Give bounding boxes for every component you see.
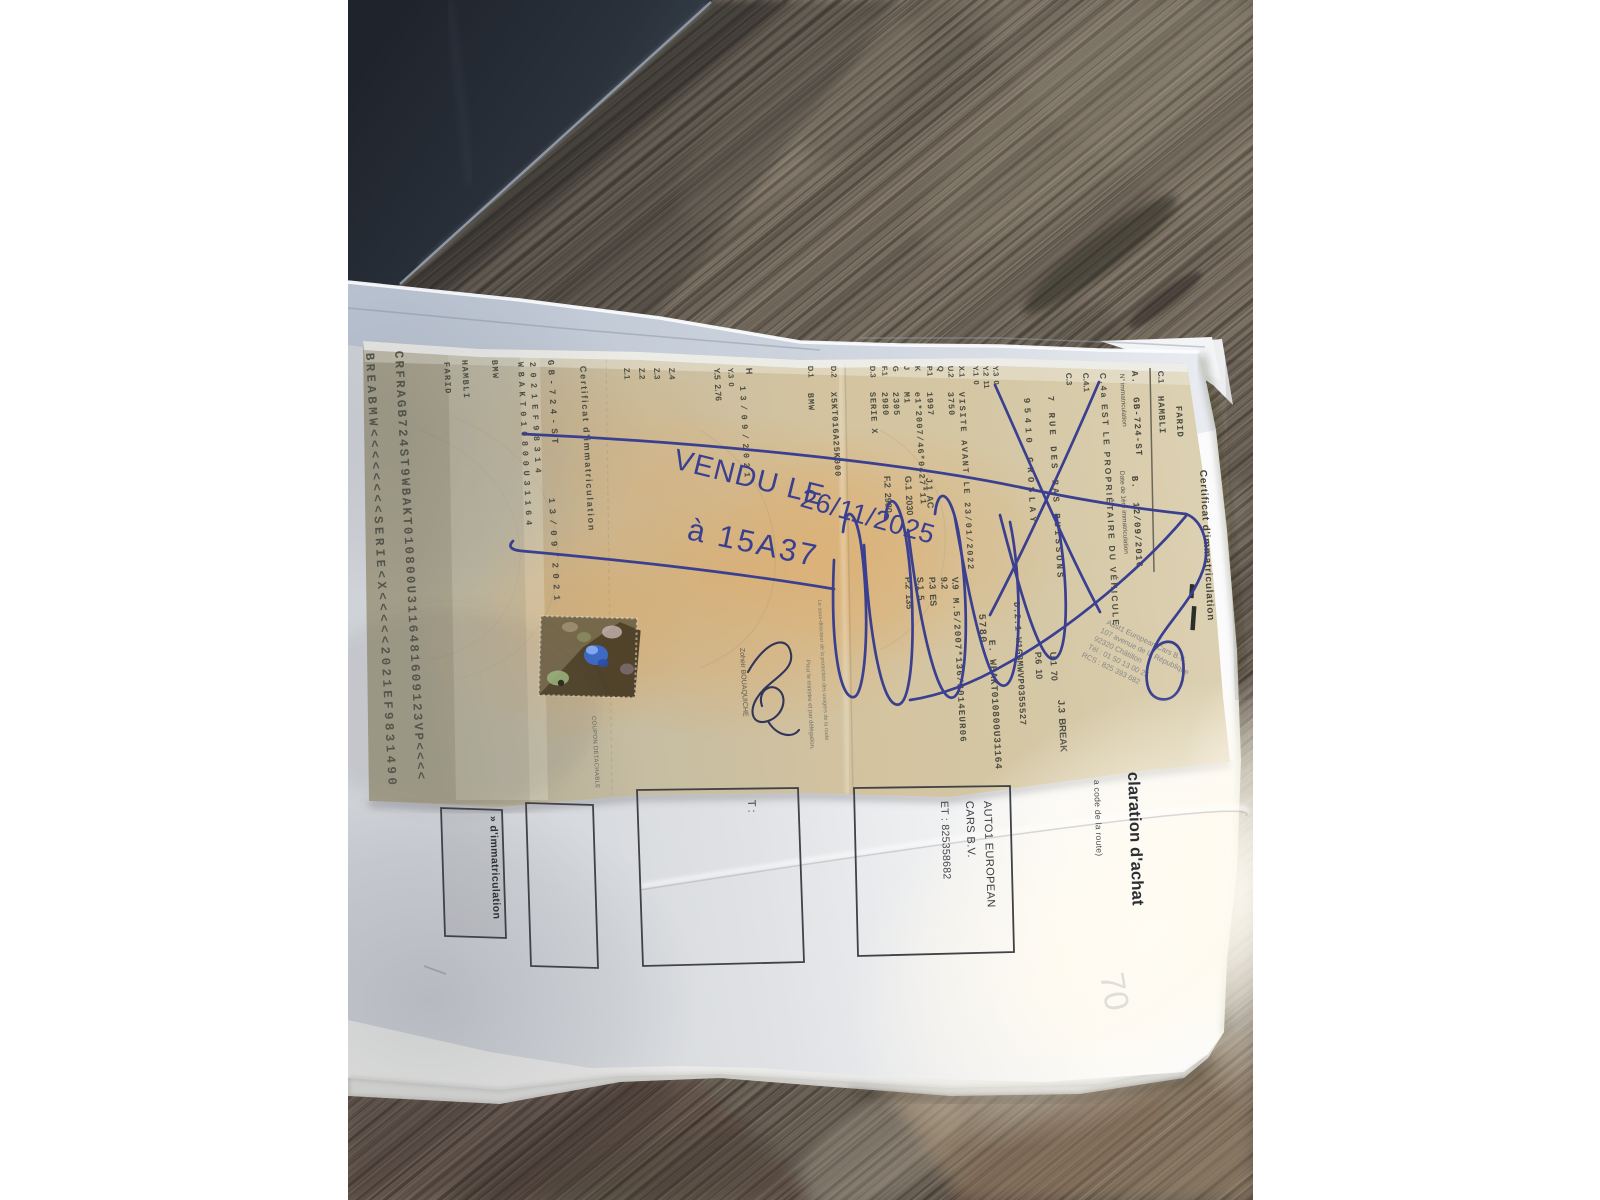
svg-text:U.2: U.2 xyxy=(946,366,956,378)
svg-text:2305: 2305 xyxy=(890,392,901,417)
svg-text:Y.5 2.76: Y.5 2.76 xyxy=(712,368,724,402)
svg-text:C.4.1: C.4.1 xyxy=(1081,373,1091,393)
svg-text:H: H xyxy=(744,368,754,375)
svg-text:3750: 3750 xyxy=(945,392,956,417)
svg-text:70: 70 xyxy=(1092,970,1136,1014)
svg-text:HAMBLI: HAMBLI xyxy=(1155,396,1167,435)
svg-text:1997: 1997 xyxy=(924,392,935,417)
svg-text:V.9: V.9 xyxy=(950,577,961,590)
svg-text:Q: Q xyxy=(936,366,945,372)
svg-text:9.2: 9.2 xyxy=(939,577,950,590)
svg-text:Z.4: Z.4 xyxy=(667,368,677,381)
svg-text:2980: 2980 xyxy=(879,392,890,417)
svg-text:D.3: D.3 xyxy=(868,366,878,378)
svg-text:M1: M1 xyxy=(901,392,912,405)
svg-text:C.1: C.1 xyxy=(1156,371,1166,384)
svg-text:Y.3 0: Y.3 0 xyxy=(726,368,736,387)
svg-text:Y.2 11: Y.2 11 xyxy=(981,366,991,389)
svg-text:C.3: C.3 xyxy=(1064,373,1074,386)
svg-text:D.2: D.2 xyxy=(829,366,839,378)
svg-text:P.3 ES: P.3 ES xyxy=(927,577,939,607)
svg-text:X.1: X.1 xyxy=(957,366,967,378)
svg-text:T :: T : xyxy=(745,800,757,813)
svg-text:J: J xyxy=(902,366,911,371)
svg-text:Y.1 0: Y.1 0 xyxy=(971,366,981,385)
svg-text:Y.3 0: Y.3 0 xyxy=(991,366,1001,385)
svg-text:F.1: F.1 xyxy=(880,366,890,376)
svg-text:CARS B.V.: CARS B.V. xyxy=(963,801,977,858)
svg-text:P.1: P.1 xyxy=(925,366,935,377)
svg-text:G.1 2030: G.1 2030 xyxy=(903,476,915,516)
svg-text:FARID: FARID xyxy=(1173,406,1185,438)
svg-text:J.1 AC: J.1 AC xyxy=(924,478,936,509)
svg-text:P.6 10: P.6 10 xyxy=(1033,652,1044,680)
svg-text:G: G xyxy=(891,366,900,372)
svg-text:BMW: BMW xyxy=(805,393,816,412)
svg-text:D.1: D.1 xyxy=(806,366,816,378)
svg-text:Z.3: Z.3 xyxy=(652,368,662,381)
